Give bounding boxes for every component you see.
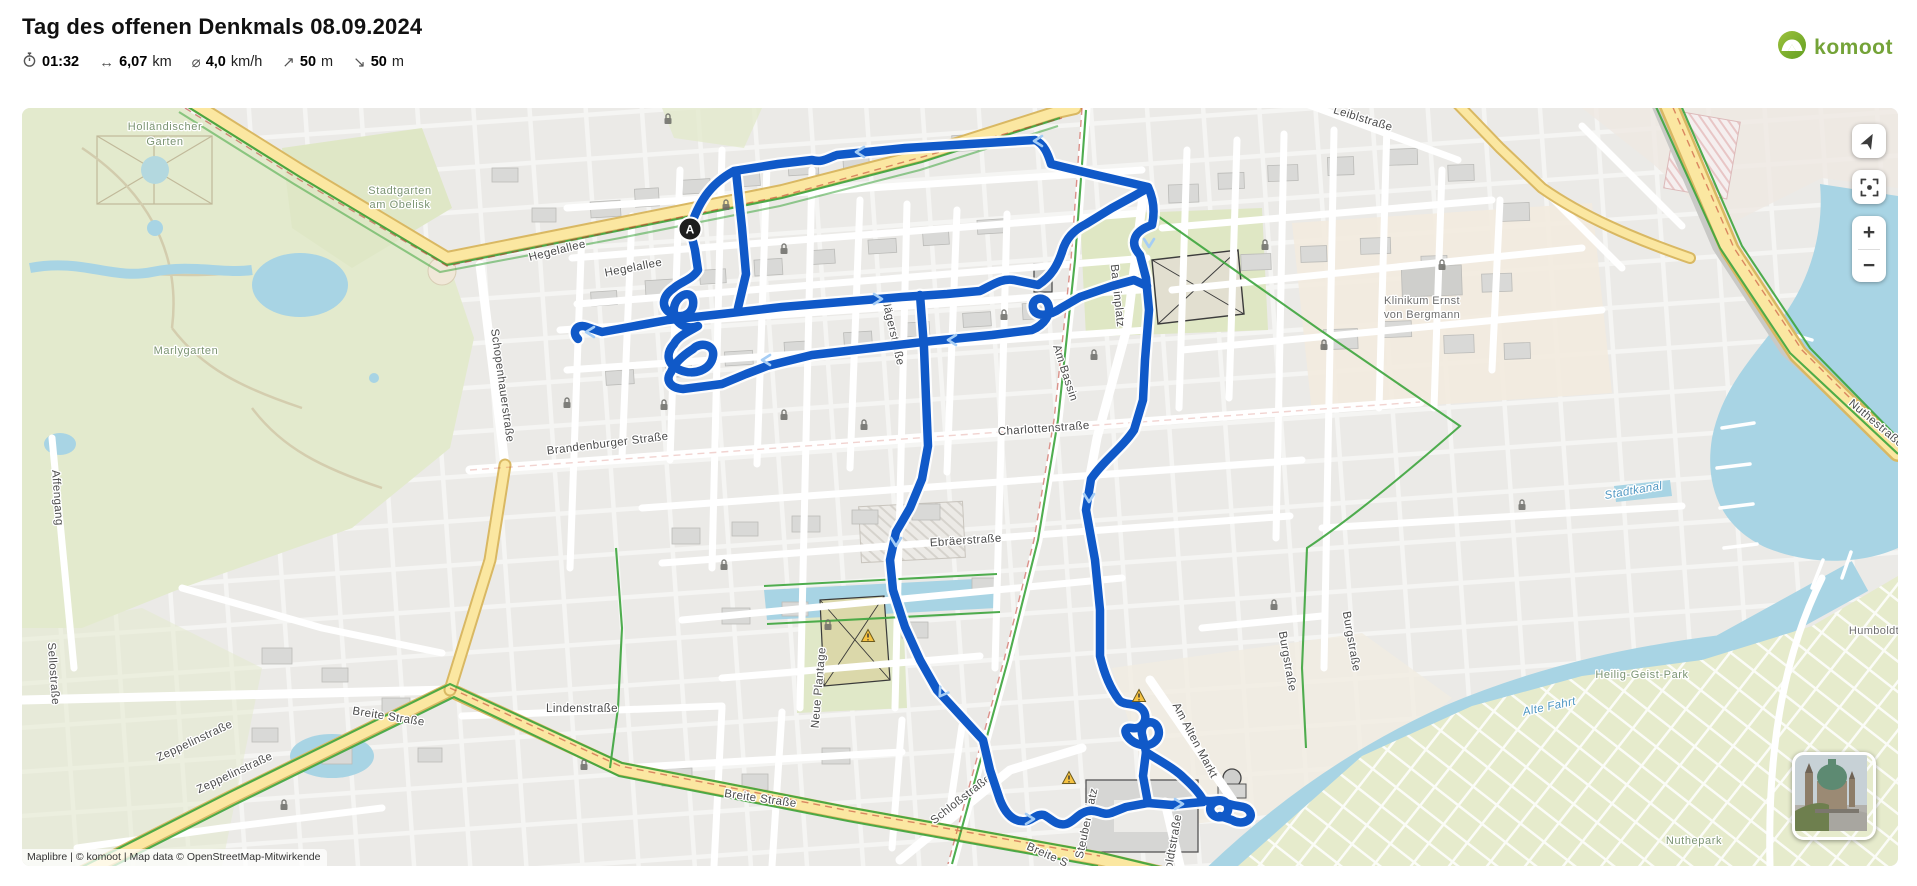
locate-arrow-icon <box>1860 132 1878 150</box>
stat-ascent: ↗ 50 m <box>282 54 333 70</box>
zoom-in-button[interactable]: + <box>1852 216 1886 249</box>
tour-stats: 01:32 ↔ 6,07 km ⌀ 4,0 km/h ↗ 50 m ↘ 50 m <box>22 52 1895 72</box>
map-canvas[interactable]: HolländischerGartenStadtgartenam Obelisk… <box>22 108 1898 866</box>
map-attribution[interactable]: Maplibre | © komoot | Map data © OpenStr… <box>22 849 327 866</box>
map-label: Lindenstraße <box>546 703 618 715</box>
zoom-controls: + − <box>1852 216 1886 282</box>
stat-duration: 01:32 <box>22 52 79 72</box>
map-tiles: HolländischerGartenStadtgartenam Obelisk… <box>22 108 1898 866</box>
avg-speed-icon: ⌀ <box>192 55 201 70</box>
map-label: Holländischer <box>128 121 202 133</box>
tour-photo-thumbnail[interactable] <box>1792 752 1876 840</box>
map-label: Garten <box>146 136 183 148</box>
stat-descent: ↘ 50 m <box>353 54 404 70</box>
komoot-logo[interactable]: komoot <box>1777 30 1893 65</box>
stat-avg-speed: ⌀ 4,0 km/h <box>192 54 263 70</box>
map-label: Marlygarten <box>154 345 219 357</box>
map-label: Klinikum Ernst <box>1384 295 1460 307</box>
page-title: Tag des offenen Denkmals 08.09.2024 <box>22 14 1895 40</box>
svg-text:A: A <box>686 223 695 237</box>
map-label: Heilig-Geist-Park <box>1595 669 1688 681</box>
locate-button[interactable] <box>1852 124 1886 158</box>
church-photo <box>1795 755 1867 831</box>
map-label: von Bergmann <box>1384 309 1460 321</box>
map-label: Stadtgarten <box>368 185 431 197</box>
komoot-logo-icon <box>1777 30 1807 65</box>
zoom-out-button[interactable]: − <box>1852 249 1886 282</box>
header: Tag des offenen Denkmals 08.09.2024 01:3… <box>22 14 1895 72</box>
start-marker: A <box>679 218 702 241</box>
map-label: Nuthepark <box>1666 835 1722 847</box>
center-map-icon <box>1860 178 1879 197</box>
descent-icon: ↘ <box>353 55 366 70</box>
map-label: Humboldt <box>1849 625 1898 637</box>
center-map-button[interactable] <box>1852 170 1886 204</box>
stat-distance: ↔ 6,07 km <box>99 54 172 70</box>
komoot-wordmark: komoot <box>1814 36 1893 60</box>
distance-icon: ↔ <box>99 55 114 70</box>
map-label: am Obelisk <box>369 199 430 211</box>
stopwatch-icon <box>22 52 37 72</box>
ascent-icon: ↗ <box>282 55 295 70</box>
